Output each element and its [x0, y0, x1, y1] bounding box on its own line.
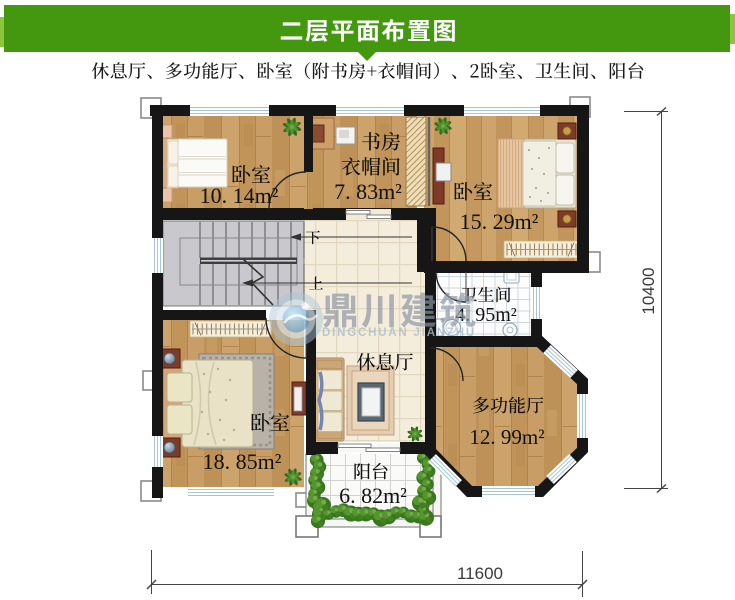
svg-text:DINGCHUAN JIANZHU: DINGCHUAN JIANZHU: [322, 327, 476, 339]
svg-text:12. 99m²: 12. 99m²: [469, 425, 544, 449]
svg-text:18. 85m²: 18. 85m²: [203, 449, 282, 474]
svg-text:15. 29m²: 15. 29m²: [460, 209, 539, 234]
svg-text:10400: 10400: [639, 267, 658, 314]
svg-text:11600: 11600: [457, 564, 503, 583]
svg-text:6. 82m²: 6. 82m²: [339, 483, 407, 508]
svg-text:7. 83m²: 7. 83m²: [334, 179, 402, 204]
svg-text:10. 14m²: 10. 14m²: [200, 183, 279, 208]
